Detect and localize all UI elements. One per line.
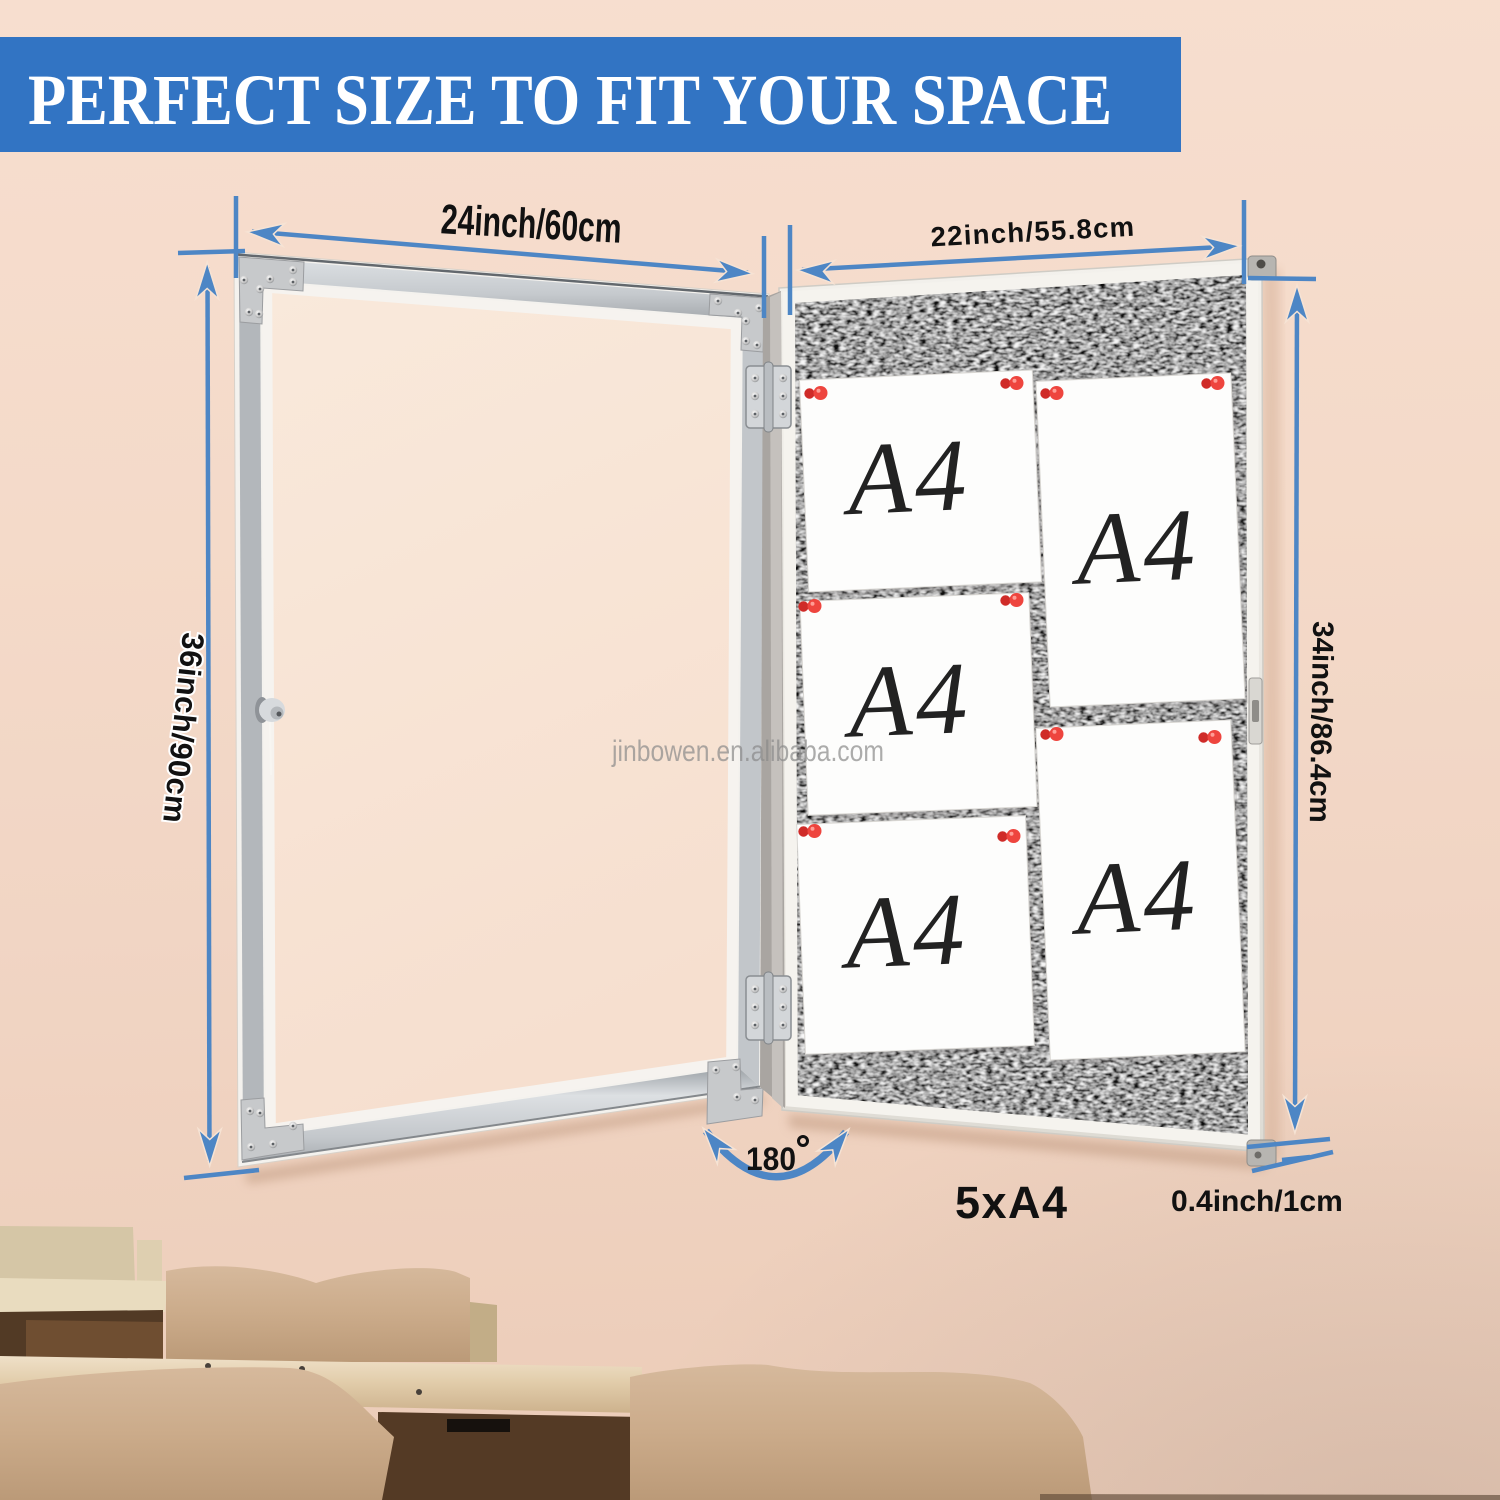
svg-text:34inch/86.4cm: 34inch/86.4cm (1303, 621, 1340, 823)
svg-text:22inch/55.8cm: 22inch/55.8cm (930, 211, 1136, 253)
svg-text:24inch/60cm: 24inch/60cm (440, 195, 623, 251)
svg-text:5xA4: 5xA4 (955, 1177, 1069, 1228)
svg-text:A4: A4 (838, 872, 971, 991)
svg-text:36inch/90cm: 36inch/90cm (156, 631, 211, 825)
svg-text:PERFECT SIZE TO FIT YOUR SPACE: PERFECT SIZE TO FIT YOUR SPACE (28, 60, 1112, 140)
svg-text:A4: A4 (1068, 488, 1201, 607)
svg-text:180: 180 (746, 1141, 796, 1177)
svg-text:A4: A4 (1068, 838, 1201, 957)
svg-text:A4: A4 (839, 418, 972, 537)
svg-text:jinbowen.en.alibaba.com: jinbowen.en.alibaba.com (611, 735, 884, 768)
svg-text:0.4inch/1cm: 0.4inch/1cm (1171, 1185, 1343, 1218)
